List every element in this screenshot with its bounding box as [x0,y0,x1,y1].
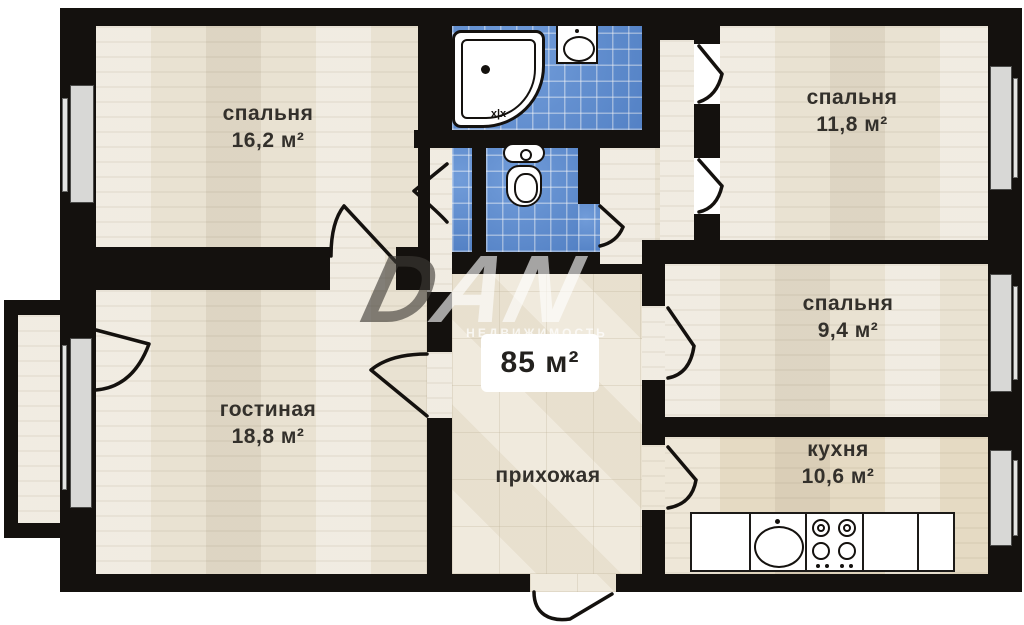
counter-divider-2 [805,514,807,570]
wall-hall-living [427,292,452,574]
bathtub-inner-line [461,39,536,119]
sink-faucet [575,29,579,33]
label-hallway: прихожая [448,462,648,489]
wall-bedroom2-left-1 [694,26,720,44]
wall-balcony-top [4,300,62,315]
entrance-door-arc [534,592,612,620]
wall-bedroom2-bottom [642,240,992,264]
stove-knob-4 [849,564,853,568]
wall-bedroom1-bath [418,8,452,148]
wall-corridor-stub [418,247,430,290]
label-bedroom2-name: спальня [752,84,952,111]
balcony-door-unit [70,338,92,508]
stove-burner-bl [812,542,830,560]
stove-burner-br [838,542,856,560]
bedroom3-door-gap [642,306,665,380]
floor-plan: x|x [0,0,1024,625]
bathroom-sink-icon [556,24,598,64]
label-bedroom1-area: 16,2 м² [168,127,368,154]
label-living-area: 18,8 м² [168,423,368,450]
kitchen-sink-icon [754,526,804,568]
stove-knob-2 [825,564,829,568]
counter-divider-1 [749,514,751,570]
wall-wc-vestibule [472,148,486,252]
bathtub-drain [481,65,490,74]
kitchen-counter [690,512,955,572]
kitchen-window [990,450,1012,546]
bedroom1-door-gap [330,247,396,290]
wall-wc-right [578,130,600,204]
wall-exterior-top [60,8,1022,26]
label-living: гостиная 18,8 м² [168,396,368,450]
wall-bedroom2-left-3 [694,214,720,240]
closet-strip-floor [660,40,694,240]
wc-vestibule-floor [452,148,472,252]
wall-corridor-left [418,148,430,247]
wall-bath-right-top [642,8,694,40]
stove-knob-3 [840,564,844,568]
stove-burner-tr [838,519,856,537]
label-bedroom2-area: 11,8 м² [752,111,952,138]
label-bedroom1-name: спальня [168,100,368,127]
label-bedroom3: спальня 9,4 м² [748,290,948,344]
wall-balcony-left [4,300,18,538]
kitchen-sink-faucet [775,519,780,524]
toilet-bowl-icon [506,165,542,207]
toilet-bowl-inner [514,173,538,203]
bedroom2-window [990,66,1012,190]
bedroom3-window-sill [1013,286,1018,380]
bedroom2-door-arc-1 [699,46,722,102]
wall-wc-bottom [452,252,600,274]
sink-basin [563,36,595,62]
label-kitchen-name: кухня [738,436,938,463]
label-bedroom3-name: спальня [748,290,948,317]
bedroom2-window-sill [1013,78,1018,178]
toilet-tank-hole [520,149,532,161]
label-hallway-name: прихожая [448,462,648,489]
balcony-window-sill [62,345,67,490]
bedroom1-window [70,85,94,203]
counter-divider-4 [917,514,919,570]
label-bedroom2: спальня 11,8 м² [752,84,952,138]
label-bedroom1: спальня 16,2 м² [168,100,368,154]
balcony-floor [18,315,62,523]
wall-bedroom2-left-2 [694,104,720,158]
total-area-value: 85 м² [501,346,580,380]
bathtub-icon: x|x [452,30,545,128]
corridor-floor [430,148,452,292]
counter-divider-3 [862,514,864,570]
wall-bath-right [642,40,660,148]
entrance-door-gap [530,574,616,592]
bedroom2-door-arc-2 [699,160,722,212]
total-area-badge: 85 м² [481,334,599,392]
stove-knob-1 [816,564,820,568]
wall-bedroom3-kitchen [665,417,992,437]
wall-pocket-bottom [600,264,642,274]
stove-burner-tl [812,519,830,537]
label-living-name: гостиная [168,396,368,423]
pocket-floor [600,148,660,240]
bedroom3-window [990,274,1012,392]
bathtub-tap-icon: x|x [455,108,542,120]
toilet-tank-icon [503,143,545,163]
label-kitchen-area: 10,6 м² [738,463,938,490]
living-door-gap [427,352,452,418]
label-kitchen: кухня 10,6 м² [738,436,938,490]
bedroom1-window-sill [62,98,68,192]
room-hallway-floor [452,274,642,574]
wall-balcony-bottom [4,523,62,538]
label-bedroom3-area: 9,4 м² [748,317,948,344]
kitchen-window-sill [1013,460,1018,536]
wc-door-gap [578,204,600,252]
